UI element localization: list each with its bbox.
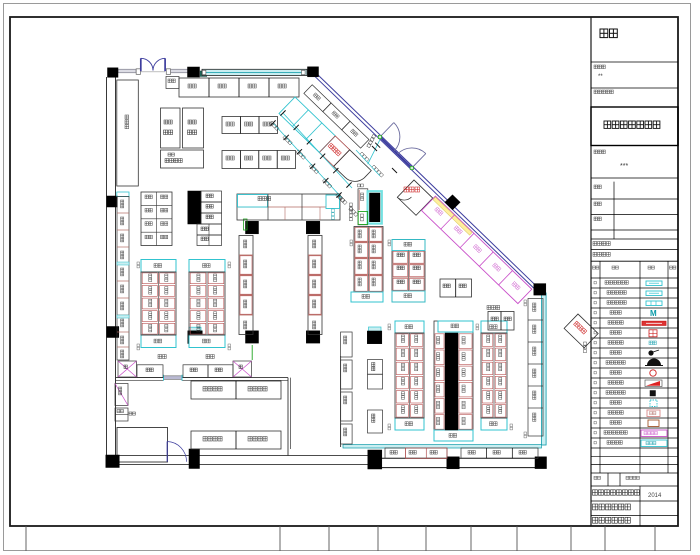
- svg-text:2014: 2014: [648, 493, 662, 499]
- svg-text:***: ***: [620, 163, 628, 170]
- svg-text:M: M: [650, 309, 657, 318]
- svg-text:**: **: [598, 74, 603, 80]
